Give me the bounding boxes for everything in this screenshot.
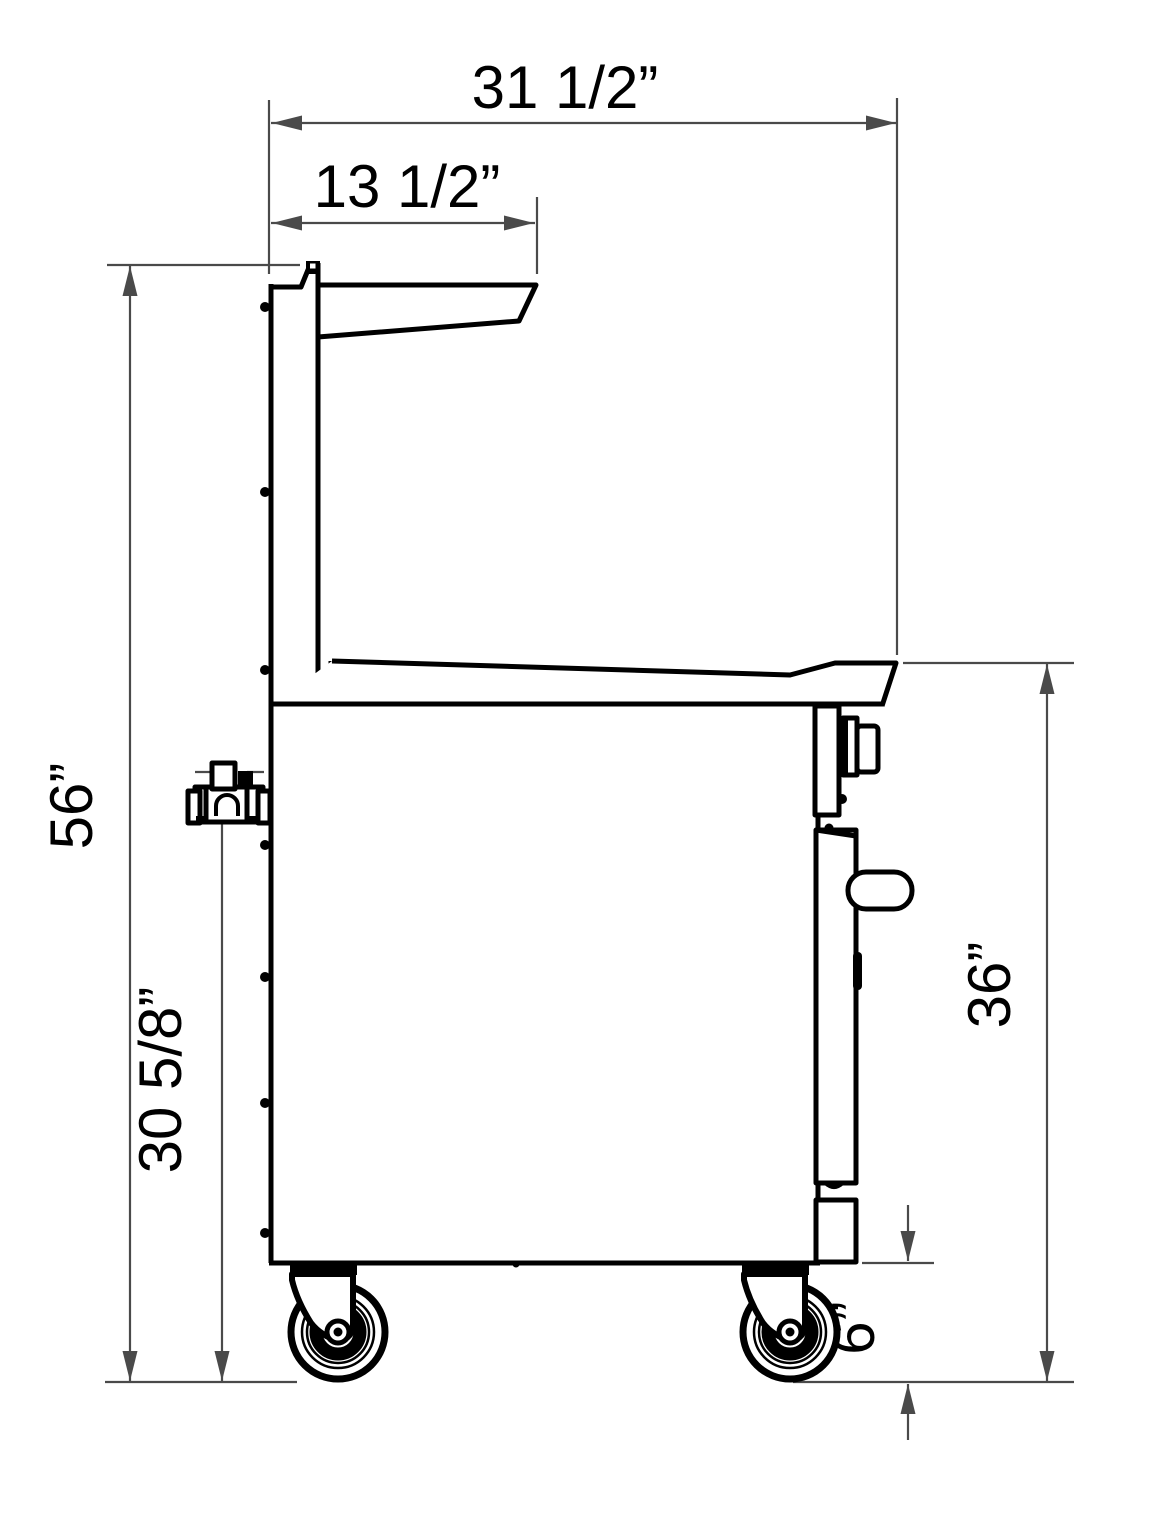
- arrow-up-icon: [901, 1384, 916, 1414]
- dim-label-overall-height: 56”: [38, 763, 105, 850]
- control-knob: [843, 718, 878, 775]
- dim-gas-height: 30 5/8”: [127, 806, 230, 1381]
- door-latch: [853, 952, 862, 990]
- dim-overall-depth: 31 1/2”: [269, 54, 897, 655]
- arrow-down-icon: [215, 1351, 230, 1381]
- arrow-left-icon: [272, 216, 302, 231]
- caster-left: [290, 1265, 385, 1379]
- arrow-up-icon: [1040, 664, 1055, 694]
- door-handle: [848, 872, 912, 909]
- high-shelf: [318, 285, 536, 337]
- dim-label-shelf-depth: 13 1/2”: [314, 153, 501, 220]
- drawing-page: 31 1/2” 13 1/2” 56” 30 5/8”: [0, 0, 1159, 1531]
- arrow-up-icon: [123, 266, 138, 296]
- arrow-right-icon: [504, 216, 534, 231]
- caster-right: [742, 1265, 837, 1379]
- arrow-down-icon: [1040, 1351, 1055, 1381]
- arrow-left-icon: [272, 116, 302, 131]
- dim-label-overall-depth: 31 1/2”: [472, 54, 659, 121]
- range-body-drawing: [188, 261, 912, 1379]
- dim-shelf-depth: 13 1/2”: [271, 153, 537, 274]
- arrow-right-icon: [866, 116, 896, 131]
- dim-label-gas-height: 30 5/8”: [127, 987, 194, 1174]
- dim-label-surface-height: 36”: [956, 942, 1023, 1029]
- arrow-down-icon: [123, 1351, 138, 1381]
- kick-panel: [816, 1200, 856, 1262]
- cabinet-face: [271, 661, 818, 1263]
- arrow-down-icon: [901, 1231, 916, 1261]
- range-side-view-drawing: 31 1/2” 13 1/2” 56” 30 5/8”: [0, 0, 1159, 1531]
